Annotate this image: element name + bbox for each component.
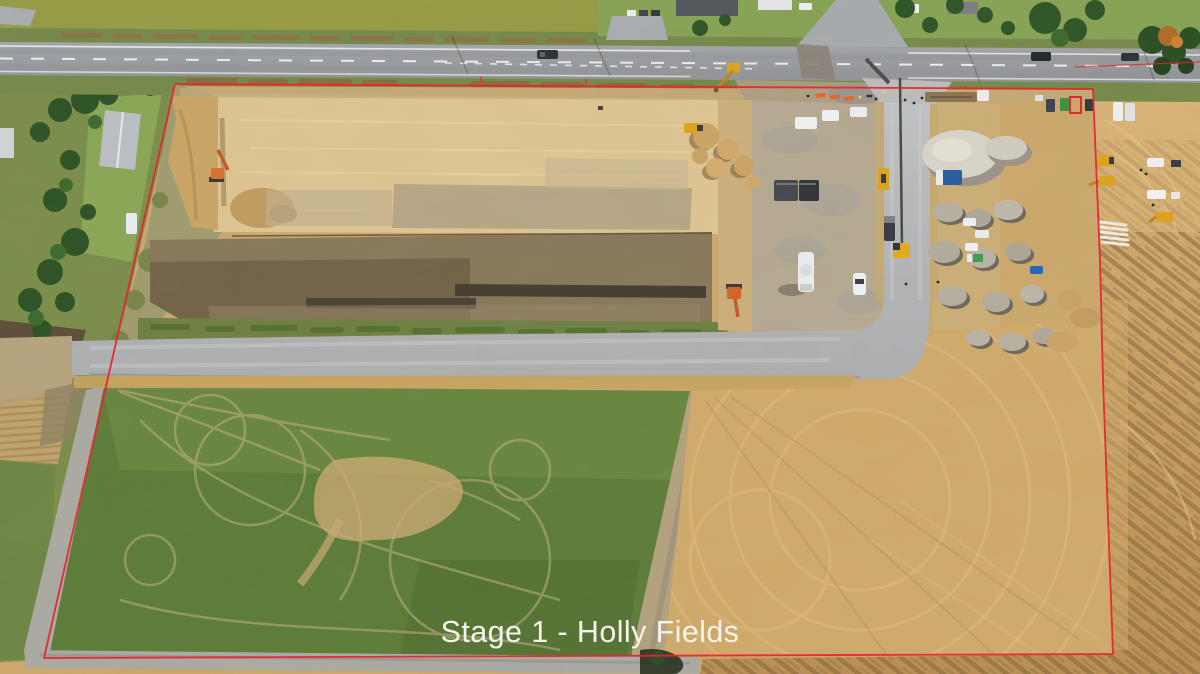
stage-caption: Stage 1 - Holly Fields — [441, 615, 740, 649]
aerial-photo-stage1-holly-fields: Stage 1 - Holly Fields — [0, 0, 1200, 674]
grain-texture — [0, 0, 1200, 674]
aerial-photo-canvas: Stage 1 - Holly Fields — [0, 0, 1200, 674]
